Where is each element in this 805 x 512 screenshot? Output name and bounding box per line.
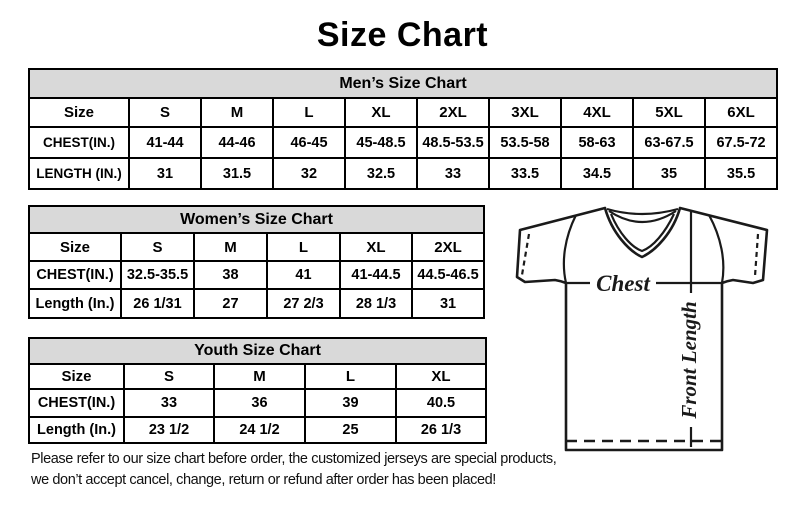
size-cell: S [121,233,194,261]
value-cell: 33.5 [489,158,561,189]
table-row: CHEST(IN.) 33 36 39 40.5 [29,389,486,417]
womens-table-title: Women’s Size Chart [29,206,484,233]
page-title: Size Chart [0,16,805,55]
table-row: Length (In.) 23 1/2 24 1/2 25 26 1/3 [29,417,486,443]
value-cell: 63-67.5 [633,127,705,158]
value-cell: 46-45 [273,127,345,158]
youth-table-title: Youth Size Chart [29,338,486,364]
disclaimer-text: Please refer to our size chart before or… [31,449,551,491]
womens-size-table: Women’s Size Chart Size S M L XL 2XL CHE… [28,205,485,319]
value-cell: 32.5 [345,158,417,189]
table-row: Size S M L XL 2XL [29,233,484,261]
row-label-cell: Length (In.) [29,289,121,318]
value-cell: 25 [305,417,396,443]
row-label-cell: LENGTH (IN.) [29,158,129,189]
table-row: LENGTH (IN.) 31 31.5 32 32.5 33 33.5 34.… [29,158,777,189]
value-cell: 24 1/2 [214,417,305,443]
size-cell: M [214,364,305,389]
size-chart-image: Size Chart Men’s Size Chart Size S M L X… [0,0,805,512]
tshirt-diagram: Chest Front Length [509,195,801,475]
value-cell: 35.5 [705,158,777,189]
size-cell: XL [345,98,417,127]
size-cell: 3XL [489,98,561,127]
size-cell: S [124,364,214,389]
tshirt-outline [517,208,767,450]
row-label-cell: CHEST(IN.) [29,389,124,417]
youth-size-table: Youth Size Chart Size S M L XL CHEST(IN.… [28,337,487,444]
value-cell: 38 [194,261,267,289]
table-row: Men’s Size Chart [29,69,777,98]
value-cell: 23 1/2 [124,417,214,443]
value-cell: 28 1/3 [340,289,412,318]
table-row: Size S M L XL [29,364,486,389]
size-cell: M [201,98,273,127]
value-cell: 39 [305,389,396,417]
size-cell: 5XL [633,98,705,127]
row-label-cell: CHEST(IN.) [29,261,121,289]
table-row: Women’s Size Chart [29,206,484,233]
size-cell: XL [396,364,486,389]
value-cell: 34.5 [561,158,633,189]
value-cell: 31 [129,158,201,189]
value-cell: 27 [194,289,267,318]
table-row: Youth Size Chart [29,338,486,364]
value-cell: 41 [267,261,340,289]
value-cell: 33 [124,389,214,417]
value-cell: 31.5 [201,158,273,189]
value-cell: 41-44 [129,127,201,158]
row-label-cell: Size [29,233,121,261]
value-cell: 48.5-53.5 [417,127,489,158]
row-label-cell: CHEST(IN.) [29,127,129,158]
size-cell: L [305,364,396,389]
value-cell: 32 [273,158,345,189]
value-cell: 27 2/3 [267,289,340,318]
front-length-label: Front Length [677,301,701,419]
disclaimer-line-2: we don’t accept cancel, change, return o… [31,470,551,491]
size-cell: M [194,233,267,261]
value-cell: 35 [633,158,705,189]
value-cell: 41-44.5 [340,261,412,289]
value-cell: 44-46 [201,127,273,158]
size-cell: L [267,233,340,261]
value-cell: 67.5-72 [705,127,777,158]
value-cell: 53.5-58 [489,127,561,158]
row-label-cell: Size [29,364,124,389]
value-cell: 40.5 [396,389,486,417]
size-cell: 6XL [705,98,777,127]
size-cell: 2XL [417,98,489,127]
size-cell: 2XL [412,233,484,261]
value-cell: 36 [214,389,305,417]
mens-size-table: Men’s Size Chart Size S M L XL 2XL 3XL 4… [28,68,778,190]
size-cell: 4XL [561,98,633,127]
size-cell: S [129,98,201,127]
value-cell: 33 [417,158,489,189]
value-cell: 26 1/3 [396,417,486,443]
size-cell: XL [340,233,412,261]
row-label-cell: Size [29,98,129,127]
table-row: Length (In.) 26 1/31 27 27 2/3 28 1/3 31 [29,289,484,318]
row-label-cell: Length (In.) [29,417,124,443]
collar-back-arc [607,209,678,214]
table-row: Size S M L XL 2XL 3XL 4XL 5XL 6XL [29,98,777,127]
chest-label: Chest [596,271,650,296]
size-cell: L [273,98,345,127]
value-cell: 26 1/31 [121,289,194,318]
table-row: CHEST(IN.) 32.5-35.5 38 41 41-44.5 44.5-… [29,261,484,289]
mens-table-title: Men’s Size Chart [29,69,777,98]
table-row: CHEST(IN.) 41-44 44-46 46-45 45-48.5 48.… [29,127,777,158]
value-cell: 31 [412,289,484,318]
disclaimer-line-1: Please refer to our size chart before or… [31,449,551,470]
value-cell: 44.5-46.5 [412,261,484,289]
value-cell: 58-63 [561,127,633,158]
value-cell: 45-48.5 [345,127,417,158]
value-cell: 32.5-35.5 [121,261,194,289]
